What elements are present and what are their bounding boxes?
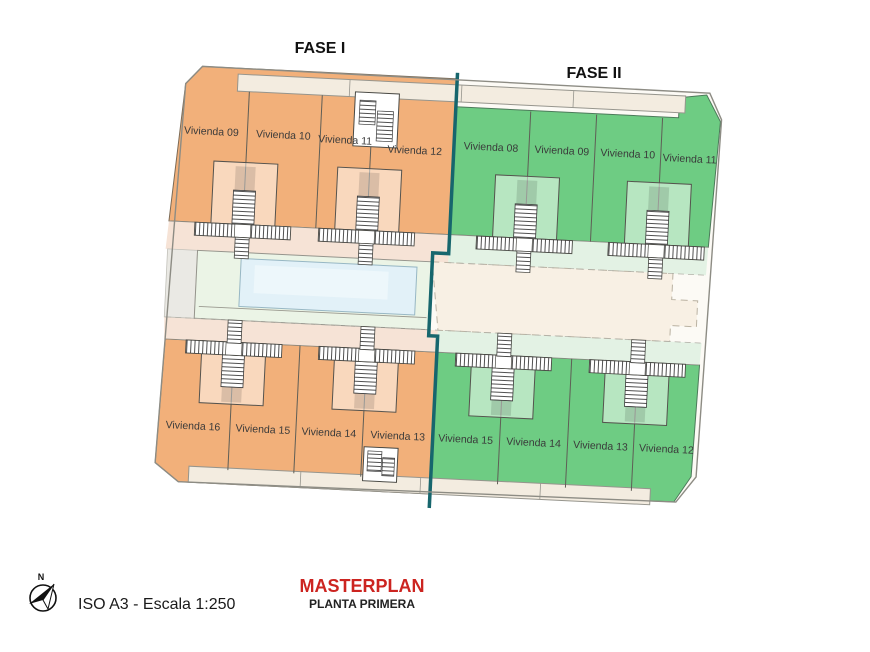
footer: N ISO A3 - Escala 1:250 MASTERPLAN PLANT… (29, 572, 425, 613)
site-plan: Vivienda 09 Vivienda 10 Vivienda 11 Vivi… (154, 59, 724, 521)
fase2-title: FASE II (566, 65, 621, 82)
scale-text: ISO A3 - Escala 1:250 (78, 596, 236, 613)
page-subtitle: PLANTA PRIMERA (309, 597, 415, 611)
corner-stair-block-bottom (363, 447, 399, 483)
north-label: N (38, 572, 45, 582)
page-title: MASTERPLAN (300, 576, 425, 596)
fase1-title: FASE I (295, 40, 346, 57)
masterplan-page: Vivienda 09 Vivienda 10 Vivienda 11 Vivi… (0, 0, 870, 652)
masterplan-svg: Vivienda 09 Vivienda 10 Vivienda 11 Vivi… (0, 0, 870, 652)
